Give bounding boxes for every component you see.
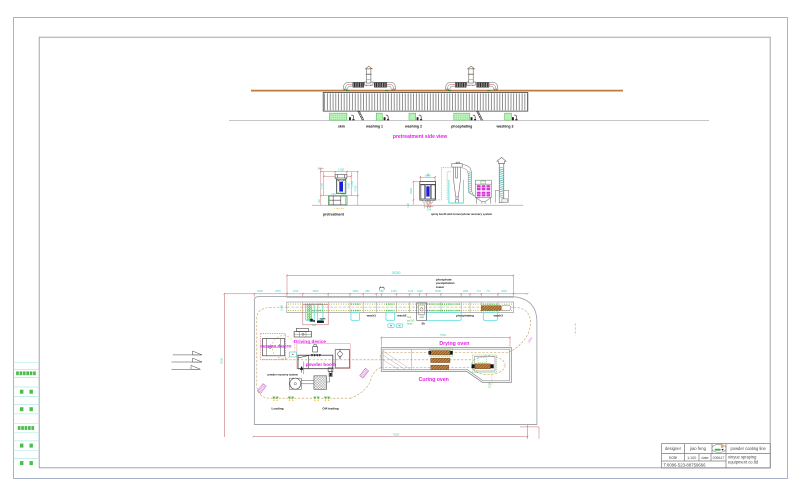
svg-text:phosphating: phosphating (456, 313, 474, 317)
svg-text:washing 1: washing 1 (365, 124, 383, 128)
svg-text:1700: 1700 (293, 289, 299, 293)
svg-text:1750: 1750 (320, 183, 324, 189)
svg-text:Driving device: Driving device (294, 339, 326, 344)
svg-text:washing 2: washing 2 (404, 124, 422, 128)
svg-text:774: 774 (477, 289, 482, 293)
svg-text:jiao feng: jiao feng (689, 446, 707, 451)
svg-text:2750: 2750 (354, 185, 358, 191)
svg-text:Loading: Loading (271, 406, 283, 410)
svg-text:2570: 2570 (275, 289, 281, 293)
svg-text:fourb: fourb (407, 323, 413, 326)
svg-text:7000: 7000 (393, 433, 400, 437)
svg-text:1:100: 1:100 (687, 456, 696, 460)
svg-text:600: 600 (312, 324, 317, 327)
svg-text:005617: 005617 (713, 456, 725, 460)
svg-text:tension device: tension device (260, 344, 292, 349)
svg-text:936: 936 (427, 208, 432, 212)
svg-text:1500: 1500 (280, 305, 284, 311)
svg-text:1500: 1500 (526, 336, 533, 344)
svg-text:skin: skin (338, 124, 345, 128)
svg-text:spray booth and monocyclone re: spray booth and monocyclone recovery sys… (431, 212, 493, 216)
svg-text:5000: 5000 (435, 289, 441, 293)
svg-text:2200: 2200 (501, 289, 507, 293)
svg-text:5000: 5000 (220, 358, 224, 364)
svg-text:powder booth: powder booth (306, 362, 337, 367)
svg-text:T:0086-523-88759666: T:0086-523-88759666 (664, 462, 707, 467)
svg-text:pretreatment side view: pretreatment side view (393, 134, 447, 140)
svg-text:1445: 1445 (391, 289, 397, 293)
svg-text:2500: 2500 (409, 188, 413, 194)
svg-text:226: 226 (331, 192, 336, 196)
svg-text:1500: 1500 (257, 289, 263, 293)
svg-text:Off loading: Off loading (322, 406, 338, 410)
svg-text:1058: 1058 (338, 168, 344, 172)
svg-text:note: note (669, 455, 678, 460)
svg-text:wash2: wash2 (396, 313, 407, 317)
svg-text:7500: 7500 (440, 333, 447, 337)
svg-text:89: 89 (317, 199, 321, 202)
svg-text:880: 880 (379, 289, 384, 293)
svg-text:1006: 1006 (463, 289, 469, 293)
svg-text:1450: 1450 (352, 289, 358, 293)
svg-text:date: date (701, 456, 708, 460)
svg-text:Drying oven: Drying oven (439, 341, 469, 347)
svg-text:1716: 1716 (408, 289, 414, 293)
svg-text:phosphating: phosphating (451, 124, 472, 128)
svg-text:washing 3: washing 3 (496, 124, 514, 128)
svg-text:1000: 1000 (417, 289, 423, 293)
svg-text:xinyue spraying: xinyue spraying (728, 454, 757, 459)
svg-text:128: 128 (406, 203, 410, 208)
svg-text:wash1: wash1 (366, 313, 377, 317)
svg-text:tower: tower (436, 285, 445, 289)
svg-text:powder coating line: powder coating line (731, 446, 767, 451)
svg-text:pretreatment: pretreatment (323, 212, 345, 216)
svg-text:24250: 24250 (392, 271, 401, 275)
svg-text:designer: designer (665, 446, 682, 451)
svg-text:wash3: wash3 (493, 313, 504, 317)
svg-text:spin: spin (320, 317, 326, 321)
svg-text:260: 260 (318, 166, 323, 170)
svg-text:1750: 1750 (350, 181, 354, 187)
svg-text:1500: 1500 (347, 183, 351, 189)
svg-text:1500: 1500 (488, 382, 492, 388)
svg-text:powder recovery system: powder recovery system (268, 373, 299, 377)
svg-text:Curing oven: Curing oven (419, 377, 449, 383)
svg-text:2b: 2b (422, 321, 426, 325)
svg-text:equipment co.ltd: equipment co.ltd (728, 460, 759, 465)
svg-text:3000: 3000 (313, 289, 319, 293)
svg-text:880: 880 (365, 289, 370, 293)
svg-text:771: 771 (486, 289, 491, 293)
